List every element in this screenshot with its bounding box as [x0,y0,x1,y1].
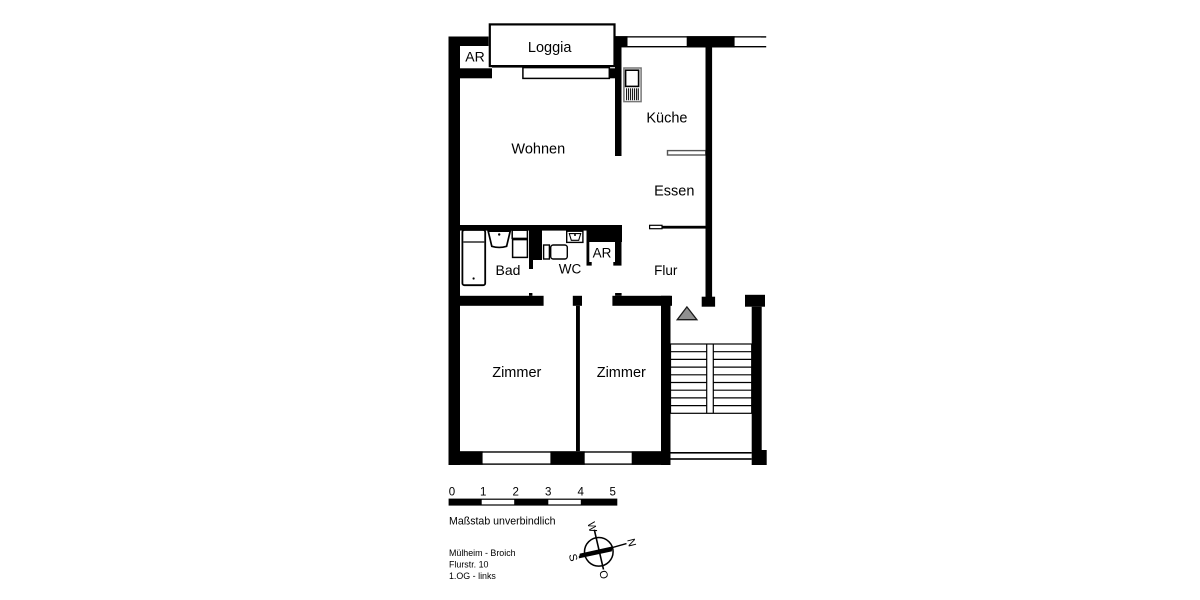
svg-text:1: 1 [480,487,486,499]
svg-text:Loggia: Loggia [528,40,572,56]
svg-text:Flurstr. 10: Flurstr. 10 [449,559,489,569]
svg-text:Wohnen: Wohnen [511,141,565,157]
svg-text:Flur: Flur [654,263,678,278]
svg-text:Maßstab unverbindlich: Maßstab unverbindlich [449,515,556,527]
svg-text:1.OG - links: 1.OG - links [449,571,496,581]
svg-text:5: 5 [609,487,615,499]
svg-text:WC: WC [559,262,582,277]
svg-text:Mülheim - Broich: Mülheim - Broich [449,548,516,558]
svg-text:AR: AR [593,245,612,260]
svg-text:0: 0 [449,487,455,499]
svg-text:Bad: Bad [496,262,521,278]
svg-text:Essen: Essen [654,184,694,200]
svg-text:2: 2 [512,487,518,499]
svg-text:Zimmer: Zimmer [492,365,541,381]
svg-text:3: 3 [545,487,551,499]
svg-text:4: 4 [577,487,584,499]
svg-text:Zimmer: Zimmer [597,365,646,381]
svg-text:AR: AR [465,49,484,65]
svg-text:Küche: Küche [646,110,687,126]
